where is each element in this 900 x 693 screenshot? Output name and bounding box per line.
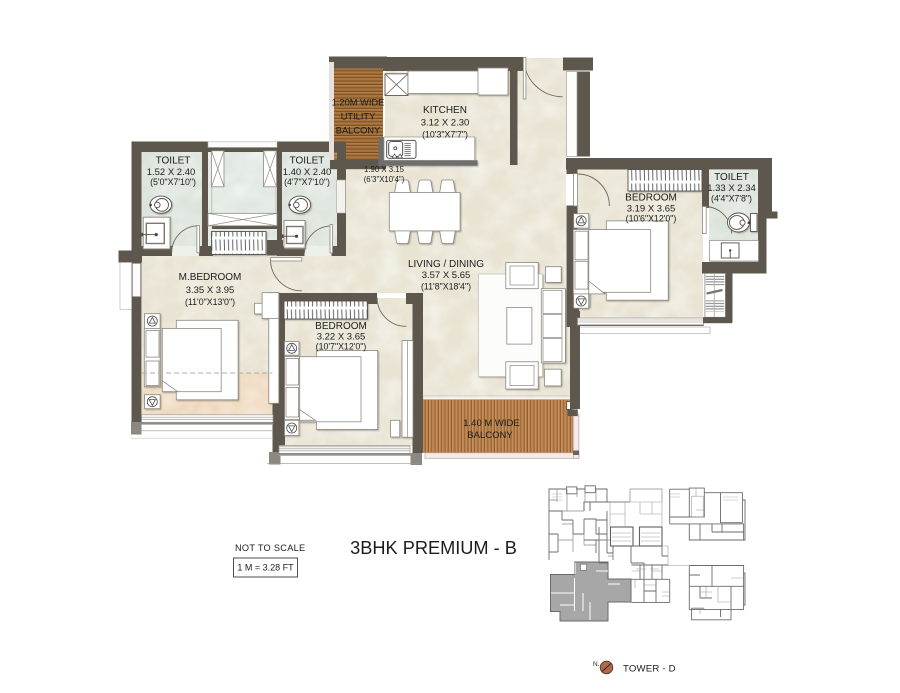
- svg-text:(10'3"X7'7"): (10'3"X7'7"): [422, 130, 468, 140]
- svg-text:(4'4"X7'8"): (4'4"X7'8"): [711, 194, 752, 204]
- svg-text:3BHK PREMIUM - B: 3BHK PREMIUM - B: [350, 538, 517, 558]
- svg-text:BEDROOM: BEDROOM: [625, 193, 677, 204]
- svg-text:1.33 X 2.34: 1.33 X 2.34: [707, 183, 756, 194]
- svg-text:(10'7"X12'0"): (10'7"X12'0"): [316, 342, 367, 352]
- svg-text:(11'0"X13'0"): (11'0"X13'0"): [185, 297, 235, 307]
- svg-text:BALCONY: BALCONY: [336, 126, 380, 136]
- svg-text:(11'8"X18'4"): (11'8"X18'4"): [421, 282, 471, 292]
- svg-text:N.: N.: [593, 661, 600, 668]
- svg-text:LIVING / DINING: LIVING / DINING: [408, 259, 484, 270]
- svg-text:1 M = 3.28 FT: 1 M = 3.28 FT: [237, 563, 294, 573]
- svg-text:1.40 M WIDE: 1.40 M WIDE: [463, 418, 520, 429]
- svg-text:KITCHEN: KITCHEN: [423, 105, 467, 116]
- svg-text:TOILET: TOILET: [156, 155, 191, 166]
- svg-text:1.90 X 3.15: 1.90 X 3.15: [364, 165, 405, 174]
- svg-text:TOILET: TOILET: [290, 155, 325, 166]
- svg-text:(10'6"X12'0"): (10'6"X12'0"): [626, 214, 677, 224]
- svg-text:(4'7"X7'10"): (4'7"X7'10"): [284, 177, 330, 187]
- svg-text:3.12 X 2.30: 3.12 X 2.30: [421, 118, 470, 129]
- svg-text:(5'0"X7'10"): (5'0"X7'10"): [150, 177, 196, 187]
- svg-text:BEDROOM: BEDROOM: [315, 321, 367, 332]
- svg-text:BALCONY: BALCONY: [467, 430, 513, 441]
- svg-text:1.20M WIDE: 1.20M WIDE: [332, 98, 385, 108]
- svg-text:TOWER - D: TOWER - D: [623, 664, 676, 675]
- svg-text:(6'3"X10'4"): (6'3"X10'4"): [364, 175, 405, 184]
- svg-text:TOILET: TOILET: [714, 172, 749, 183]
- svg-text:UTILITY: UTILITY: [341, 112, 376, 122]
- svg-text:M.BEDROOM: M.BEDROOM: [179, 272, 242, 283]
- svg-text:NOT TO SCALE: NOT TO SCALE: [235, 543, 306, 553]
- svg-text:3.35 X 3.95: 3.35 X 3.95: [186, 285, 235, 296]
- svg-text:3.57 X 5.65: 3.57 X 5.65: [422, 270, 471, 281]
